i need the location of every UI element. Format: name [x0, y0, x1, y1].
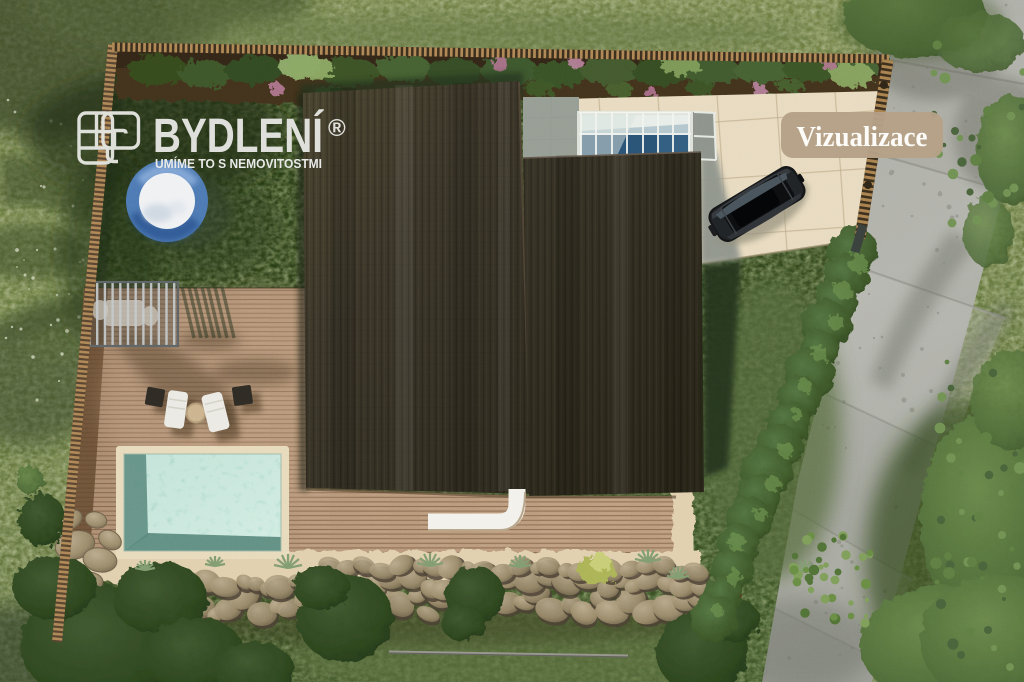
- svg-text:UMÍME TO S NEMOVITOSTMI: UMÍME TO S NEMOVITOSTMI: [155, 156, 322, 171]
- svg-text:®: ®: [328, 115, 346, 142]
- svg-text:BYDLENÍ: BYDLENÍ: [153, 109, 324, 163]
- svg-text:Vizualizace: Vizualizace: [797, 121, 928, 153]
